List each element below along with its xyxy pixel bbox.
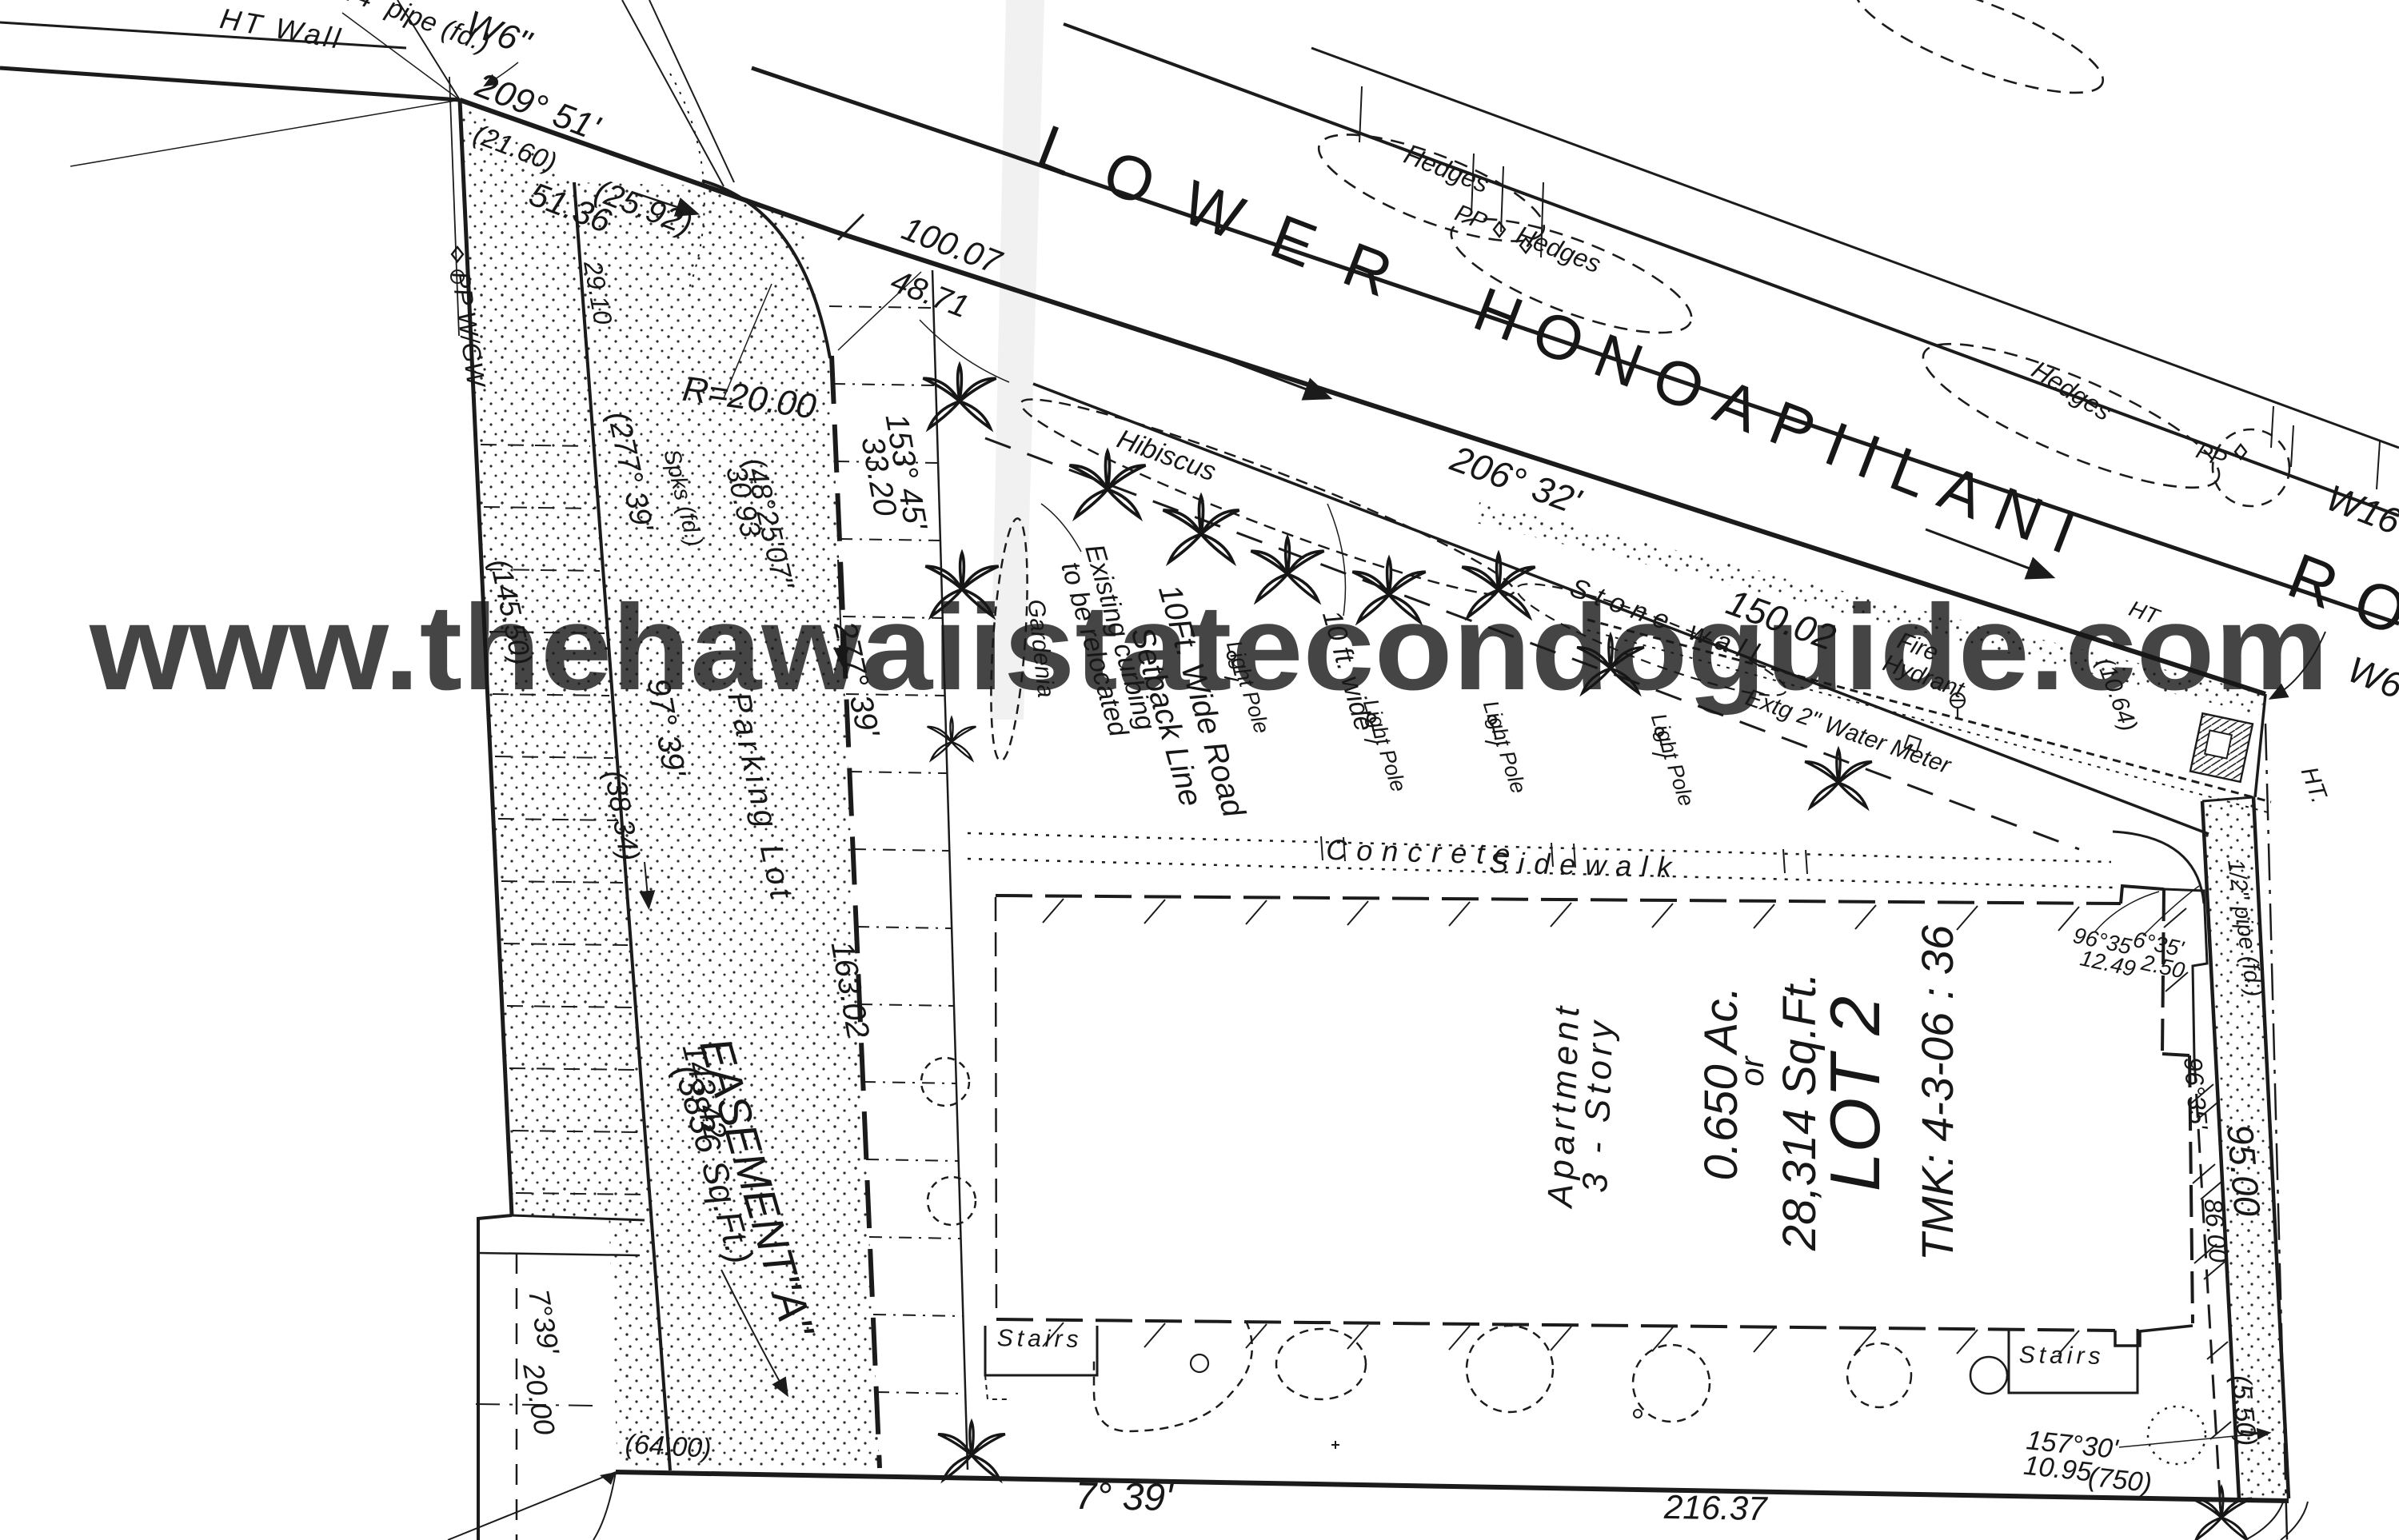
building-north-jog	[2121, 886, 2164, 904]
pp-wgw-icon	[452, 247, 463, 261]
tree-circle-1	[921, 1058, 969, 1106]
stippled-easement-strips	[460, 100, 2289, 1500]
corner-monument-inner	[2205, 730, 2232, 758]
label-dist-10-95: 10.95	[2022, 1450, 2094, 1488]
stairs-left-step	[985, 1375, 1009, 1399]
label-light-pole-4: Light Pole	[1647, 710, 1699, 808]
corner-diagonal	[448, 1472, 616, 1540]
dim-96-35-leader	[2095, 892, 2159, 932]
label-ht-right: HT.	[2296, 764, 2333, 807]
label-bearing-7-39: 7° 39'	[1075, 1475, 1175, 1519]
utility-crossing-2	[649, 0, 734, 182]
pp-pole-icon-1	[1494, 222, 1505, 237]
label-stairs-right: Stairs	[2019, 1342, 2105, 1370]
label-dist-5-50: (5.50)	[2225, 1374, 2262, 1447]
label-hibiscus: Hibiscus	[1113, 424, 1220, 488]
label-hedges-3: Hedges	[2027, 355, 2118, 426]
road-edge-line-2	[1064, 24, 2399, 516]
label-bearing-96-35b: 96°35'	[2178, 1056, 2213, 1132]
label-dist-750: (750)	[2087, 1462, 2154, 1498]
label-w6-right: W6	[2342, 648, 2399, 706]
road-edge-line-3	[1311, 48, 2399, 448]
watermark-text: www.thehawaiistatecondoguide.com	[89, 580, 2329, 716]
building-south-notch	[2115, 1326, 2193, 1346]
building-east-jog	[2162, 1054, 2189, 1055]
utility-drop-5	[2271, 406, 2273, 448]
label-dist-64-00: (64.00)	[625, 1429, 713, 1464]
label-lot-2: LOT 2	[1815, 996, 1894, 1192]
label-tmk: TMK: 4-3-06 : 36	[1912, 924, 1962, 1261]
label-bearing-7-39-left: 7°39'	[522, 1287, 566, 1357]
corner-curve-2	[2281, 1502, 2308, 1540]
plat-drawing: HT Wall3/4" pipe (fd.)W6"209° 51'(21.60)…	[0, 0, 2399, 1540]
left-boundary-jog	[478, 1215, 512, 1540]
survey-plat-scan: { "watermark": { "text": "www.thehawaiis…	[0, 0, 2399, 1540]
label-hedges-1: Hedges	[1400, 140, 1493, 198]
utility-drop-7	[2377, 441, 2380, 489]
wall-line-1	[0, 68, 460, 100]
hedge-outline-4	[1844, 0, 2114, 114]
bush-dashed-1	[1467, 1326, 1553, 1412]
hedge-tree-circle	[2213, 429, 2289, 506]
utility-drop-6	[2291, 425, 2293, 467]
wall-line-2	[0, 22, 406, 48]
tree-circle-2	[928, 1177, 976, 1225]
corner-curve-1	[2245, 1500, 2284, 1540]
palm-tree-icon	[1164, 497, 1239, 563]
bush-dashed-3	[1847, 1343, 1911, 1407]
stairs-right-circle	[1970, 1357, 2007, 1394]
bush-small	[1191, 1354, 1208, 1372]
label-w16: W16	[2321, 477, 2399, 543]
bush-oval	[1276, 1329, 1366, 1399]
utility-crossing-1	[622, 0, 724, 186]
shrub-mark	[1331, 1441, 1339, 1449]
label-dist-95-00: 95.00	[2219, 1123, 2269, 1219]
utility-drop-3	[1501, 166, 1503, 232]
building-west-wall	[996, 897, 996, 1319]
fan-line-1	[70, 100, 460, 166]
curbing-leader	[1041, 504, 1081, 552]
road-arrow-1	[1196, 348, 1326, 397]
label-hedges-2: Hedges	[1512, 220, 1605, 278]
label-stairs-left: Stairs	[997, 1325, 1083, 1353]
dim-48-71-leader	[920, 320, 1009, 382]
label-sidewalk: Sidewalk	[1489, 846, 1682, 884]
label-area-sqft: 28,314 Sq.Ft.	[1774, 972, 1826, 1251]
label-road-name-lower: LOWER	[1028, 111, 1435, 323]
label-apartment: Apartment	[1540, 1001, 1587, 1211]
stall-depth-line	[932, 270, 968, 1470]
shrub-dot	[1634, 1410, 1642, 1418]
label-dist-20-00: 20.00	[517, 1360, 561, 1438]
palm-tree-icon	[1070, 452, 1146, 518]
planter-j-curve	[1094, 1321, 1252, 1431]
palm-tree-icon	[928, 718, 976, 760]
label-ht-wall: HT Wall	[218, 2, 345, 55]
corner-leader-curve	[593, 1472, 616, 1540]
bush-dotted	[2148, 1406, 2205, 1464]
palm-tree-icon	[938, 1422, 1005, 1480]
bush-dashed-2	[1633, 1345, 1710, 1422]
label-pp-1: PP	[1451, 200, 1491, 236]
label-area-ac: 0.650 Ac.	[1695, 987, 1747, 1181]
palm-tree-icon	[923, 365, 996, 428]
label-dist-216-37: 216.37	[1663, 1488, 1769, 1527]
